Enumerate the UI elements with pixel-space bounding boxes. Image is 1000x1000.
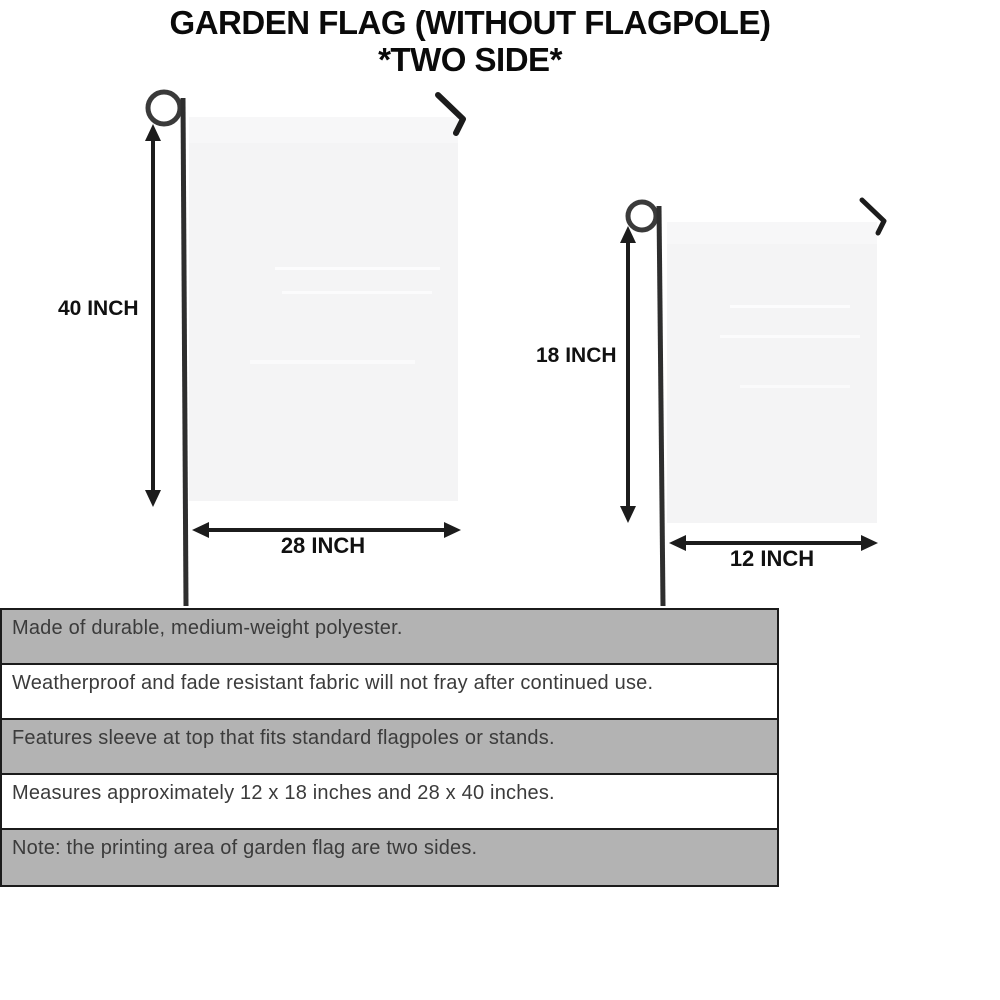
large-flag bbox=[189, 117, 458, 501]
small-flag-height-label: 18 INCH bbox=[536, 344, 617, 368]
small-flag-fold-highlight bbox=[730, 305, 850, 308]
pole-loop-icon bbox=[148, 92, 180, 124]
spec-row-material: Made of durable, medium-weight polyester… bbox=[2, 610, 777, 665]
arrow-up-icon bbox=[145, 124, 161, 141]
height-arrow-40 bbox=[145, 124, 161, 507]
small-flag-width-label: 12 INCH bbox=[690, 546, 854, 572]
small-flag-sleeve bbox=[667, 222, 877, 244]
spec-row-note: Note: the printing area of garden flag a… bbox=[2, 830, 777, 885]
arrow-down-icon bbox=[620, 506, 636, 523]
spec-row-measurements: Measures approximately 12 x 18 inches an… bbox=[2, 775, 777, 830]
arrow-left-icon bbox=[669, 535, 686, 551]
arrow-left-icon bbox=[192, 522, 209, 538]
large-flag-sleeve bbox=[189, 117, 458, 143]
pole-loop-icon bbox=[628, 202, 656, 230]
large-flag-width-label: 28 INCH bbox=[241, 533, 405, 559]
small-flag-fold-highlight bbox=[720, 335, 860, 338]
large-flag-fold-highlight bbox=[250, 360, 415, 364]
spec-row-sleeve: Features sleeve at top that fits standar… bbox=[2, 720, 777, 775]
small-flag-pole bbox=[659, 206, 663, 606]
arrow-right-icon bbox=[861, 535, 878, 551]
large-flag-pole bbox=[183, 98, 186, 606]
arrow-down-icon bbox=[145, 490, 161, 507]
small-flag bbox=[667, 222, 877, 523]
garden-flag-infographic: GARDEN FLAG (WITHOUT FLAGPOLE) *TWO SIDE… bbox=[0, 0, 1000, 1000]
large-flag-group bbox=[145, 92, 463, 606]
arrow-right-icon bbox=[444, 522, 461, 538]
large-flag-fold-highlight bbox=[275, 267, 440, 270]
large-flag-height-label: 40 INCH bbox=[58, 297, 139, 321]
spec-row-weatherproof: Weatherproof and fade resistant fabric w… bbox=[2, 665, 777, 720]
flag-size-diagram bbox=[0, 0, 1000, 610]
small-flag-fold-highlight bbox=[740, 385, 850, 388]
spec-table: Made of durable, medium-weight polyester… bbox=[0, 608, 779, 887]
height-arrow-18 bbox=[620, 226, 636, 523]
large-flag-fold-highlight bbox=[282, 291, 432, 294]
